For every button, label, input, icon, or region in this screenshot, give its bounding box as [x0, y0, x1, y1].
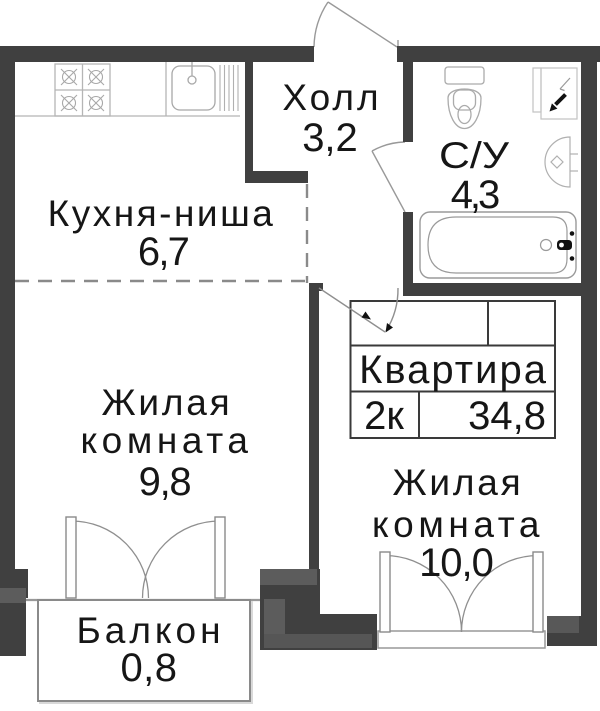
svg-text:Холл: Холл: [282, 77, 381, 118]
svg-text:4,3: 4,3: [451, 173, 499, 217]
svg-text:комната: комната: [372, 504, 544, 545]
svg-text:3,2: 3,2: [302, 116, 358, 160]
svg-text:0,8: 0,8: [120, 646, 177, 690]
svg-text:С/У: С/У: [439, 135, 510, 176]
svg-text:9,8: 9,8: [139, 460, 191, 504]
svg-text:10,0: 10,0: [419, 541, 493, 585]
svg-text:комната: комната: [80, 420, 252, 461]
svg-text:34,8: 34,8: [468, 394, 546, 438]
svg-text:Кухня-ниша: Кухня-ниша: [48, 193, 276, 234]
svg-text:Балкон: Балкон: [76, 610, 224, 651]
svg-text:Жилая: Жилая: [392, 462, 523, 503]
svg-text:2к: 2к: [364, 394, 404, 438]
svg-text:Квартира: Квартира: [359, 348, 548, 392]
svg-text:6,7: 6,7: [138, 230, 189, 274]
svg-text:Жилая: Жилая: [101, 382, 232, 423]
